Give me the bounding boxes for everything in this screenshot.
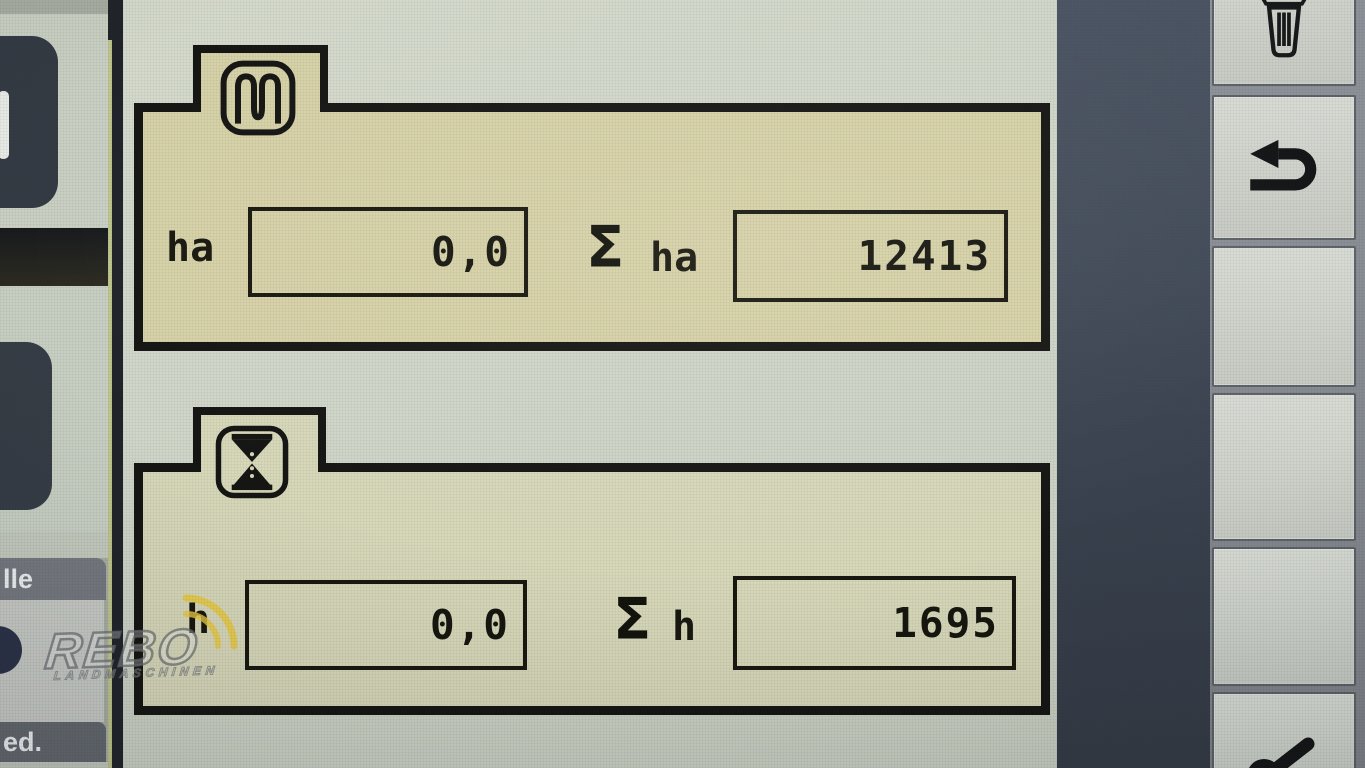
left-button-1[interactable] xyxy=(0,14,108,228)
left-item-circle-icon xyxy=(0,626,22,674)
area-total-value: 12413 xyxy=(858,232,991,280)
left-bottom-sliver xyxy=(0,762,108,768)
softkey-button-blank-3[interactable] xyxy=(1212,547,1356,686)
left-list-header[interactable]: lle xyxy=(0,558,106,600)
terminal-screen: lle ed. ha 0,0 Σ ha 12413 xyxy=(0,0,1365,768)
left-icon-glyph-fragment xyxy=(0,91,9,159)
sigma-symbol: Σ xyxy=(613,591,651,648)
area-current-value: 0,0 xyxy=(431,228,511,276)
softkey-button-blank-2[interactable] xyxy=(1212,393,1356,541)
softkey-button-blank-1[interactable] xyxy=(1212,246,1356,387)
left-separator xyxy=(108,0,123,768)
left-list-footer[interactable]: ed. xyxy=(0,722,106,762)
left-list-footer-label: ed. xyxy=(3,727,42,758)
right-sidebar xyxy=(1210,0,1365,768)
main-area: ha 0,0 Σ ha 12413 h xyxy=(123,0,1057,768)
back-button[interactable] xyxy=(1212,95,1356,240)
field-meander-icon xyxy=(218,58,298,138)
right-separator-band xyxy=(1057,0,1210,768)
return-arrow-icon xyxy=(1237,137,1331,197)
left-list-header-label: lle xyxy=(3,564,33,595)
left-list-item[interactable] xyxy=(0,600,104,722)
area-current-value-box: 0,0 xyxy=(248,207,528,297)
sigma-symbol: Σ xyxy=(586,219,624,276)
partial-tool-icon xyxy=(1234,730,1334,768)
area-sum-unit-label: ha xyxy=(650,238,698,278)
area-counter-panel: ha 0,0 Σ ha 12413 xyxy=(134,103,1050,351)
hours-current-value-box: 0,0 xyxy=(245,580,527,670)
left-divider-band xyxy=(0,228,108,286)
hours-sum-unit-label: h xyxy=(672,607,696,647)
delete-counter-button[interactable] xyxy=(1212,0,1356,86)
left-dark-icon-1 xyxy=(0,36,58,208)
left-gap xyxy=(0,532,108,558)
hours-current-value: 0,0 xyxy=(430,601,510,649)
area-unit-label: ha xyxy=(166,228,214,268)
hours-counter-panel: h 0,0 Σ h 1695 xyxy=(134,463,1050,715)
hours-total-value-box: 1695 xyxy=(733,576,1016,670)
trash-icon xyxy=(1253,0,1315,58)
left-dark-icon-2 xyxy=(0,342,52,510)
hours-total-value: 1695 xyxy=(892,599,999,647)
softkey-button-tool[interactable] xyxy=(1212,692,1356,768)
hours-unit-label: h xyxy=(186,600,210,640)
area-total-value-box: 12413 xyxy=(733,210,1008,302)
separator-highlight-line xyxy=(108,40,112,768)
hourglass-icon xyxy=(213,423,291,501)
left-button-2[interactable] xyxy=(0,286,108,532)
left-panel: lle ed. xyxy=(0,0,108,768)
